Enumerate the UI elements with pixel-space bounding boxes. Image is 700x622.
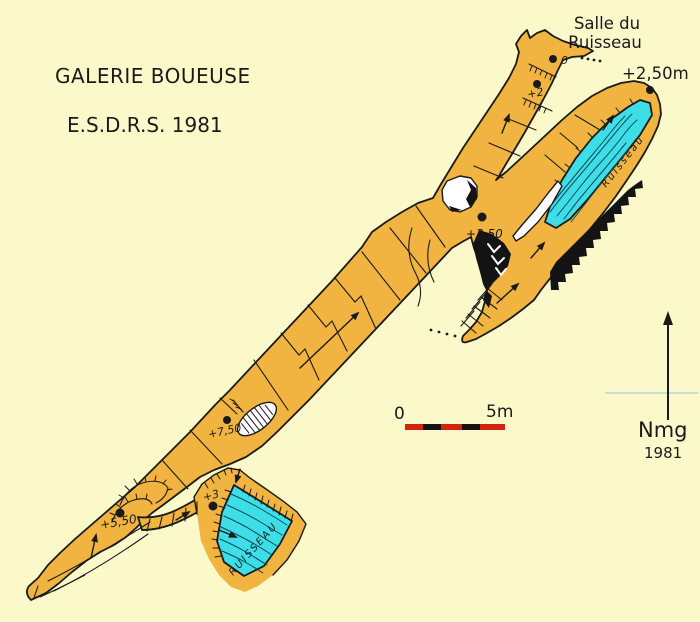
map-canvas: 0 +2 +3,50 +7,50 +5,50 +3 GALERIE BOUEUS…: [0, 0, 700, 622]
scale-red-segments: [405, 424, 505, 430]
map-subtitle: E.S.D.R.S. 1981: [67, 113, 223, 137]
cave-survey-map: 0 +2 +3,50 +7,50 +5,50 +3 GALERIE BOUEUS…: [0, 0, 700, 622]
station-label: +2: [526, 85, 544, 101]
map-title: GALERIE BOUEUSE: [55, 64, 251, 88]
north-label: Nmg: [638, 418, 688, 442]
station-dot: [646, 86, 654, 94]
station-dot: [549, 55, 557, 63]
salle-label-line2: Ruisseau: [568, 33, 642, 52]
station-label: 0: [561, 54, 568, 67]
salle-label-line1: Salle du: [574, 14, 640, 33]
station-dot: [478, 213, 487, 222]
scale-end-label: 5m: [486, 402, 513, 422]
scale-zero-label: 0: [394, 404, 405, 424]
station-label: +3,50: [466, 227, 503, 241]
entrance-elevation-label: +2,50m: [622, 64, 689, 83]
station-dot: [209, 502, 218, 511]
north-year: 1981: [644, 444, 682, 462]
boulder: [442, 176, 477, 212]
